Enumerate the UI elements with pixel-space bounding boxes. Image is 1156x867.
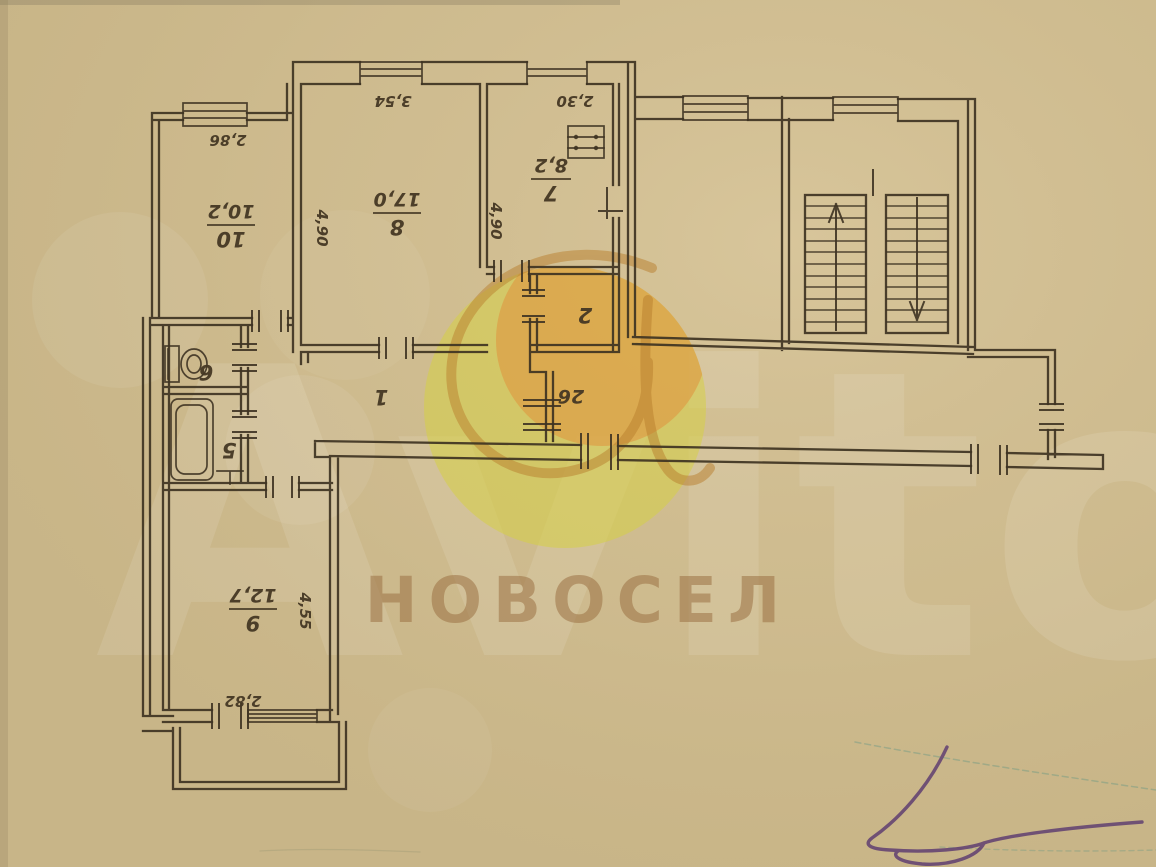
- corridor-label: 1: [374, 385, 389, 409]
- toilet-label: 6: [199, 360, 214, 384]
- dim-2-82: 2,82: [224, 692, 261, 710]
- dim-4-90-left: 4,90: [313, 208, 331, 246]
- svg-text:2,82: 2,82: [224, 692, 261, 710]
- svg-text:12,7: 12,7: [229, 584, 277, 606]
- svg-text:8,2: 8,2: [534, 154, 568, 176]
- svg-text:10: 10: [216, 227, 245, 251]
- svg-text:6: 6: [199, 360, 214, 384]
- svg-text:4,90: 4,90: [487, 201, 505, 239]
- room-2-label: 2: [578, 303, 593, 327]
- svg-text:3,54: 3,54: [374, 92, 411, 110]
- svg-text:2,86: 2,86: [209, 131, 246, 149]
- svg-text:10,2: 10,2: [208, 200, 255, 222]
- svg-text:4,90: 4,90: [313, 208, 331, 246]
- svg-text:26: 26: [558, 385, 584, 407]
- floor-plan-canvas: Avito НОВОСЕЛ: [0, 0, 1156, 867]
- svg-text:2,30: 2,30: [556, 92, 593, 110]
- svg-text:7: 7: [543, 181, 558, 205]
- svg-text:8: 8: [390, 215, 405, 239]
- bathroom-label: 5: [222, 438, 237, 462]
- dim-2-30: 2,30: [556, 92, 593, 110]
- agency-watermark: НОВОСЕЛ: [365, 564, 791, 637]
- photo-top-edge: [0, 0, 620, 5]
- floor-plan-photo: Avito НОВОСЕЛ: [0, 0, 1156, 867]
- vestibule-label: 26: [558, 385, 584, 407]
- svg-text:17,0: 17,0: [374, 188, 421, 210]
- svg-text:2: 2: [578, 303, 593, 327]
- dim-2-86: 2,86: [209, 131, 246, 149]
- dim-4-90-right: 4,90: [487, 201, 505, 239]
- svg-text:4,55: 4,55: [296, 591, 314, 629]
- dim-4-55: 4,55: [296, 591, 314, 629]
- svg-text:5: 5: [222, 438, 237, 462]
- svg-text:1: 1: [374, 385, 389, 409]
- dim-3-54: 3,54: [374, 92, 411, 110]
- svg-text:9: 9: [246, 611, 261, 635]
